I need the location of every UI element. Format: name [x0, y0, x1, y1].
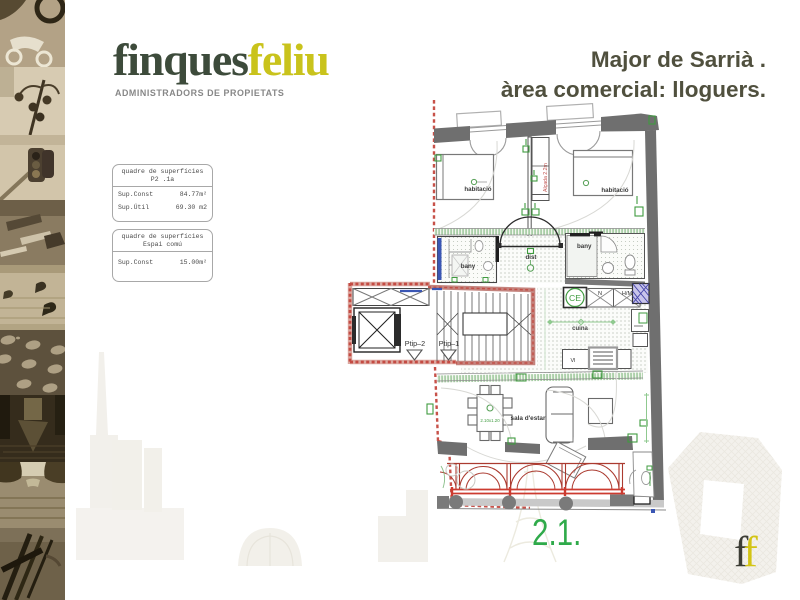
svg-text:CE: CE	[569, 293, 581, 303]
svg-text:cuina: cuina	[572, 326, 588, 332]
svg-text:habitació: habitació	[464, 186, 491, 193]
svg-text:H/M: H/M	[622, 291, 633, 297]
svg-text:bany: bany	[461, 263, 476, 270]
svg-text:habitació: habitació	[601, 187, 628, 194]
svg-text:dist: dist	[525, 254, 536, 261]
svg-text:Alçada 2.2m: Alçada 2.2m	[543, 163, 549, 192]
svg-text:bany: bany	[577, 243, 592, 250]
svg-text:sala d'estar: sala d'estar	[511, 415, 546, 422]
svg-text:Ptip–2: Ptip–2	[405, 339, 425, 348]
svg-text:2.10x1.20: 2.10x1.20	[480, 418, 500, 423]
svg-text:VI: VI	[570, 358, 575, 364]
svg-text:N: N	[598, 291, 602, 297]
svg-text:Ptip–1: Ptip–1	[439, 339, 459, 348]
